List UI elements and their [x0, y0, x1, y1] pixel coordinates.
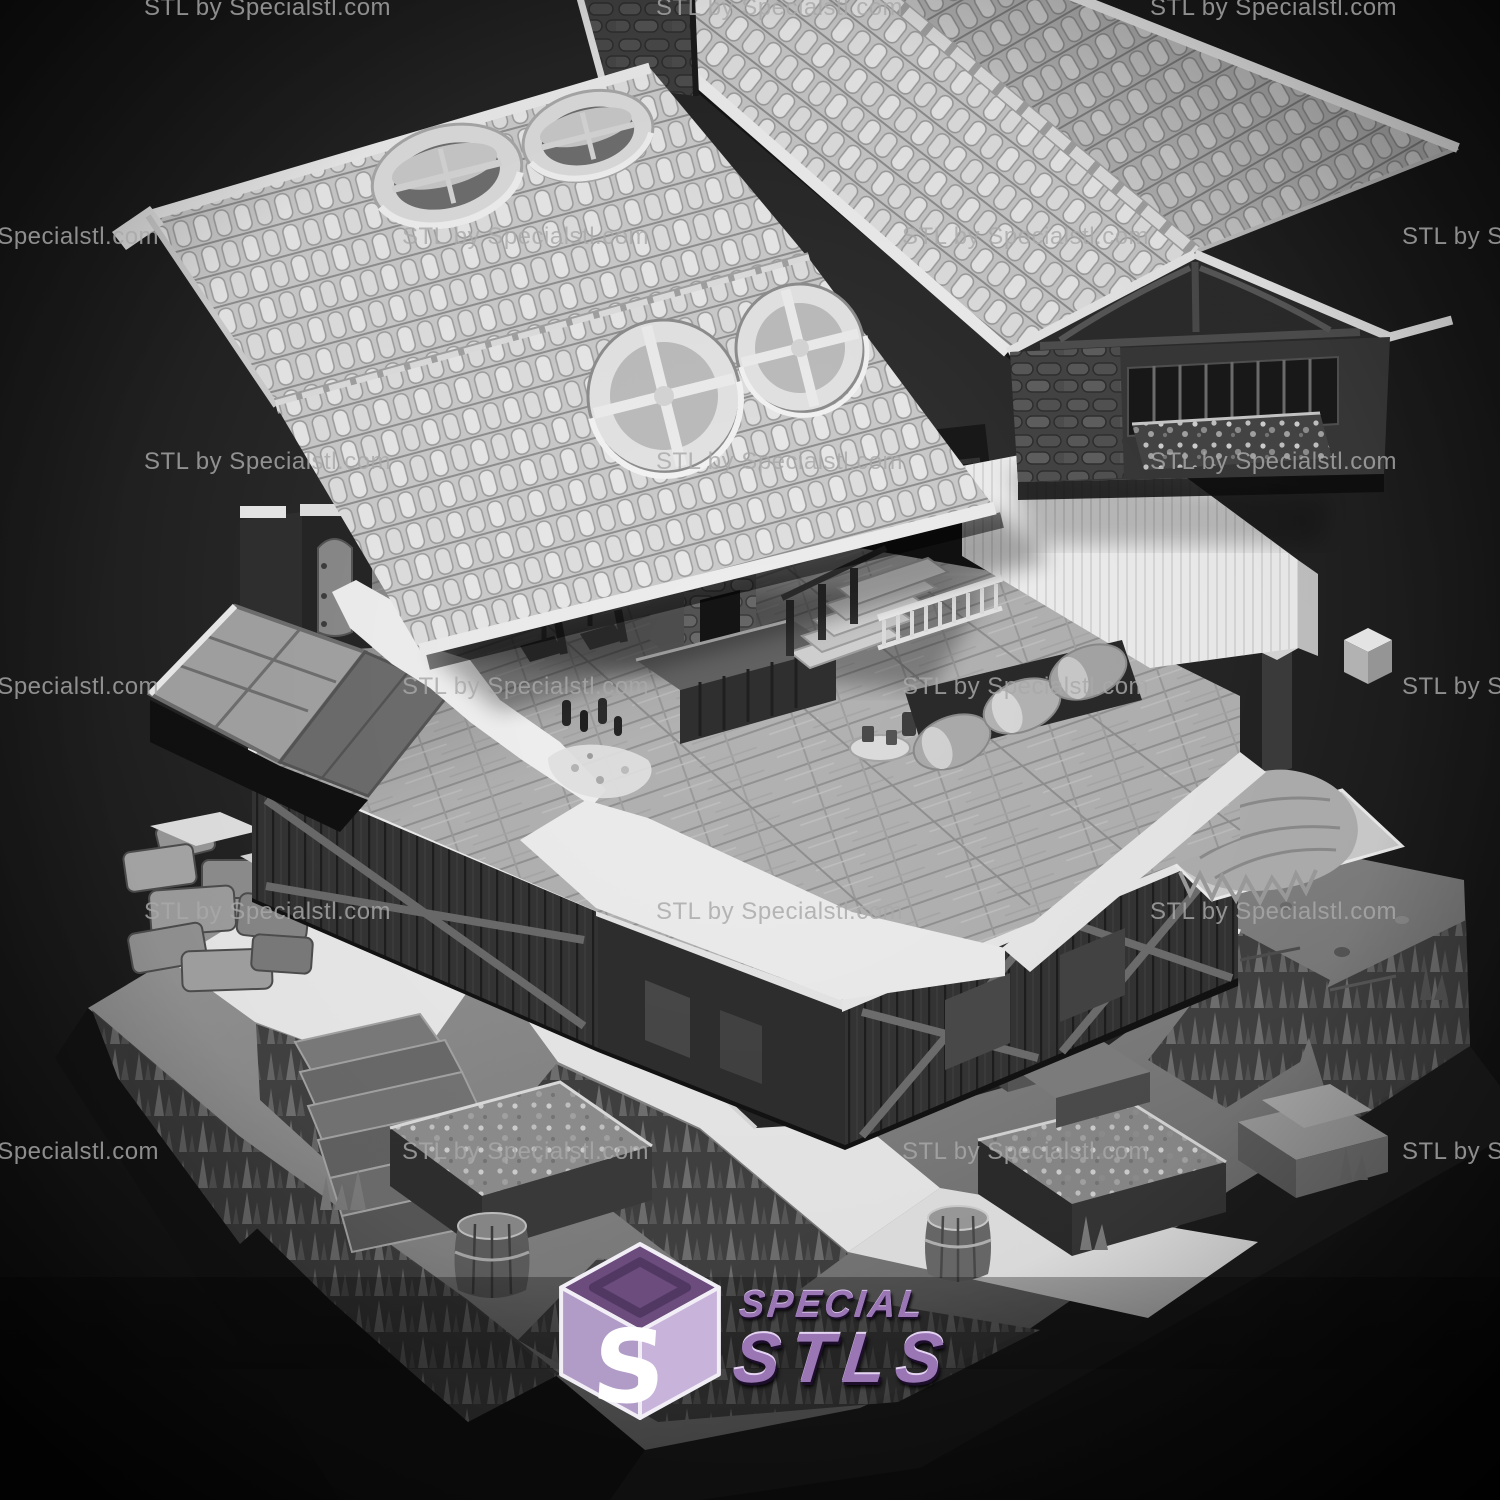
- watermark: STL by Specialstl.com: [902, 1138, 1149, 1166]
- watermark: STL by Specialstl.com: [656, 898, 903, 926]
- watermark: STL by Specialstl.com: [0, 1138, 159, 1166]
- watermark: STL by Specialstl.com: [1402, 223, 1500, 251]
- watermark: STL by Specialstl.com: [1150, 0, 1397, 22]
- watermark: STL by Specialstl.com: [144, 0, 391, 22]
- watermark: STL by Specialstl.com: [1150, 898, 1397, 926]
- watermark: STL by Specialstl.com: [656, 0, 903, 22]
- watermark: STL by Specialstl.com: [402, 673, 649, 701]
- watermark: STL by Specialstl.com: [1402, 1138, 1500, 1166]
- watermark: STL by Specialstl.com: [144, 898, 391, 926]
- logo-cube: S: [540, 1236, 740, 1426]
- specialstls-logo: S SPECIAL STLS: [540, 1236, 1020, 1426]
- watermark: STL by Specialstl.com: [402, 1138, 649, 1166]
- cube-monogram: S: [589, 1308, 670, 1426]
- watermark: STL by Specialstl.com: [0, 223, 159, 251]
- watermark: STL by Specialstl.com: [144, 448, 391, 476]
- watermark: STL by Specialstl.com: [656, 448, 903, 476]
- watermark: STL by Specialstl.com: [902, 673, 1149, 701]
- watermark: STL by Specialstl.com: [0, 673, 159, 701]
- watermark: STL by Specialstl.com: [1402, 673, 1500, 701]
- watermark: STL by Specialstl.com: [902, 223, 1149, 251]
- logo-wordmark: SPECIAL STLS: [731, 1284, 961, 1387]
- brand-bottom-text: STLS: [731, 1329, 956, 1387]
- watermark: STL by Specialstl.com: [1150, 448, 1397, 476]
- watermark: STL by Specialstl.com: [402, 223, 649, 251]
- render-stage: STL by Specialstl.com STL by Specialstl.…: [0, 0, 1500, 1500]
